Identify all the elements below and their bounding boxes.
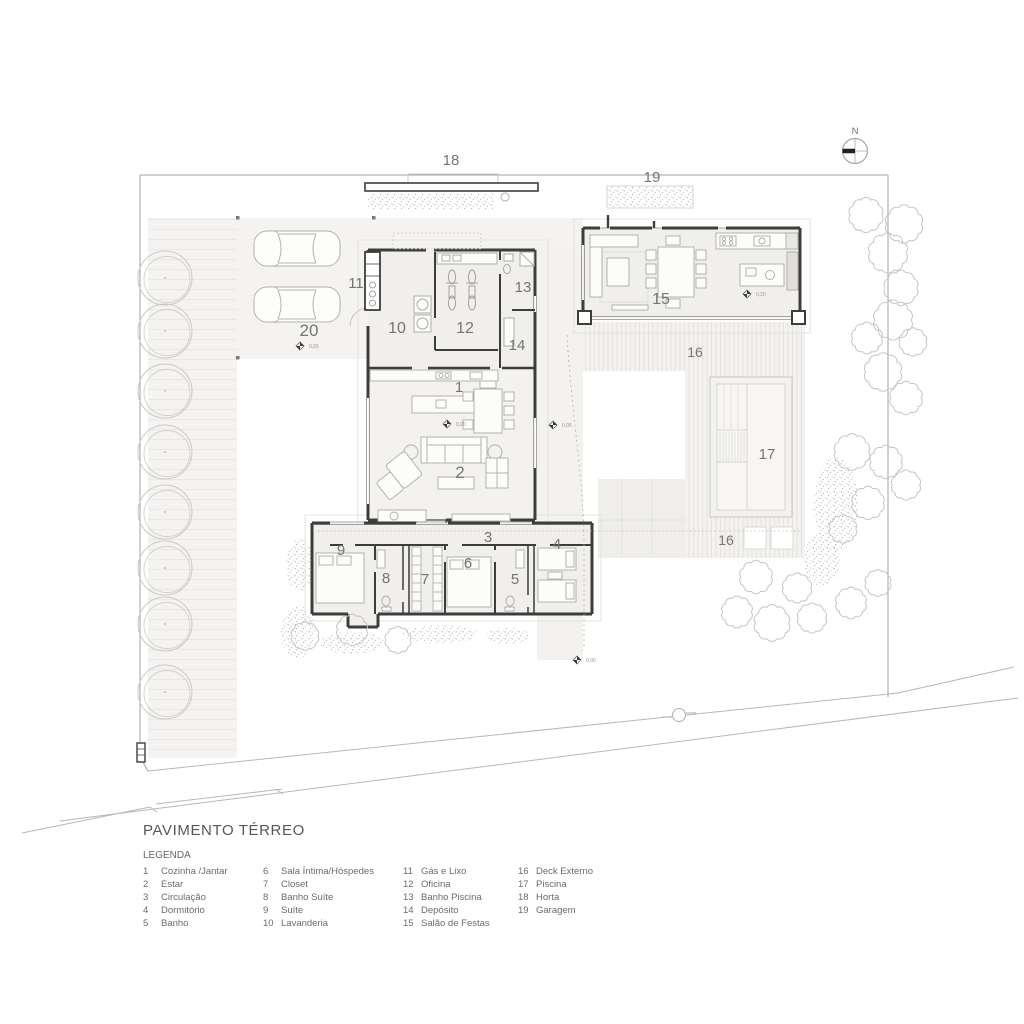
tree-scalloped [834, 434, 870, 471]
room-label-lavanderia: 10 [388, 320, 406, 337]
tree-scalloped [874, 300, 913, 340]
sofa [427, 437, 481, 445]
legend-item-number: 18 [518, 891, 536, 904]
legend-item-label: Suíte [281, 904, 403, 917]
room-label-gas-e-lixo: 11 [348, 275, 364, 292]
legend-item-label: Sala Íntima/Hóspedes [281, 865, 403, 878]
legend-column-4: 16Deck Externo17Piscina18Horta19Garagem [518, 865, 628, 930]
legend-item-11: 11Gás e Lixo [403, 865, 518, 878]
room-label-banho: 5 [511, 571, 519, 588]
tree-scalloped [852, 322, 883, 354]
legend-item-number: 15 [403, 917, 421, 930]
column [792, 311, 805, 324]
legend-item-number: 5 [143, 917, 161, 930]
room-label-banho-suite: 8 [382, 570, 390, 587]
backyard-pavers [598, 479, 685, 558]
legend-item-label: Deck Externo [536, 865, 628, 878]
room-label-estar: 2 [455, 463, 464, 482]
garagem-bed [607, 186, 693, 208]
tree-scalloped [722, 596, 753, 628]
legend-item-number: 17 [518, 878, 536, 891]
tree-scalloped [885, 205, 922, 243]
legend-item-number: 10 [263, 917, 281, 930]
legend-heading: LEGENDA [143, 850, 628, 861]
level-value: 0,05 [309, 344, 319, 350]
north-compass: N [843, 126, 868, 164]
street-access-marker [673, 709, 686, 722]
room-label-cozinha-jantar: 1 [455, 379, 463, 396]
legend-item-number: 11 [403, 865, 421, 878]
legend-item-number: 19 [518, 904, 536, 917]
legend-item-1: 1Cozinha /Jantar [143, 865, 263, 878]
room-label-deposito: 14 [509, 337, 526, 354]
legend-item-number: 9 [263, 904, 281, 917]
tree-scalloped [865, 570, 891, 597]
legend-column-3: 11Gás e Lixo12Oficina13Banho Piscina14De… [403, 865, 518, 930]
legend-item-2: 2Estar [143, 878, 263, 891]
legend-item-5: 5Banho [143, 917, 263, 930]
legend-item-label: Circulação [161, 891, 263, 904]
room-label-closet: 7 [421, 571, 429, 588]
legend-column-2: 6Sala Íntima/Hóspedes7Closet8Banho Suíte… [263, 865, 403, 930]
legend-item-12: 12Oficina [403, 878, 518, 891]
legend-item-label: Cozinha /Jantar [161, 865, 263, 878]
vanity [377, 550, 385, 568]
groundcover-patch [320, 632, 384, 654]
legend-item-10: 10Lavanderia [263, 917, 403, 930]
pedestrian-gate [137, 743, 145, 762]
lounger [744, 527, 766, 549]
horta-bed [365, 174, 538, 209]
dining-table [474, 389, 502, 433]
driveway [148, 218, 237, 758]
groundcover-patch [281, 606, 315, 658]
tree-scalloped [782, 573, 811, 603]
legend-item-18: 18Horta [518, 891, 628, 904]
room-label-sala-intima: 6 [464, 555, 472, 572]
car-1 [254, 230, 340, 267]
room-label-banho-piscina: 13 [515, 279, 532, 296]
legend-item-label: Lavanderia [281, 917, 403, 930]
legend-item-number: 6 [263, 865, 281, 878]
tree-scalloped [864, 353, 901, 391]
legend-item-number: 8 [263, 891, 281, 904]
room-label-piscina: 17 [759, 446, 776, 463]
tree-scalloped [891, 470, 920, 500]
room-label-patio-carros: 20 [300, 321, 319, 340]
tree-scalloped [754, 605, 790, 642]
tall-cabinet [787, 252, 798, 290]
legend-item-15: 15Salão de Festas [403, 917, 518, 930]
room-label-deck-externo-2: 16 [718, 532, 734, 548]
groundcover-patch [804, 534, 840, 586]
legend: 1Cozinha /Jantar2Estar3Circulação4Dormit… [143, 865, 628, 930]
legend-item-label: Banho Suíte [281, 891, 403, 904]
room-label-deck-externo-1: 16 [687, 344, 703, 360]
floor-plan-sheet: 181911131012201415161217169346875 0,050,… [0, 0, 1024, 1024]
room-label-horta: 18 [443, 152, 460, 169]
legend-item-label: Estar [161, 878, 263, 891]
tree-scalloped [890, 381, 922, 414]
party-hall [578, 215, 805, 324]
room-label-suite: 9 [337, 542, 345, 559]
legend-item-6: 6Sala Íntima/Hóspedes [263, 865, 403, 878]
tree-scalloped [740, 560, 772, 593]
legend-item-16: 16Deck Externo [518, 865, 628, 878]
legend-item-14: 14Depósito [403, 904, 518, 917]
tree-scalloped [870, 445, 902, 478]
street-line-upper [148, 667, 1014, 771]
tree-scalloped [797, 603, 826, 633]
gas-lixo-cabinet [365, 252, 380, 310]
legend-item-number: 13 [403, 891, 421, 904]
main-house [350, 250, 537, 524]
legend-item-3: 3Circulação [143, 891, 263, 904]
lounger [771, 527, 793, 549]
tree-scalloped [899, 328, 927, 356]
level-value: 0,00 [586, 658, 596, 664]
legend-item-label: Closet [281, 878, 403, 891]
vanity [516, 550, 524, 568]
level-value: 0,20 [456, 422, 466, 428]
groundcover-patch [402, 625, 478, 643]
room-label-circulacao: 3 [484, 529, 492, 546]
legend-item-number: 1 [143, 865, 161, 878]
sink [504, 254, 513, 261]
column [578, 311, 591, 324]
legend-item-19: 19Garagem [518, 904, 628, 917]
level-value: 0,20 [756, 292, 766, 298]
tree-scalloped [836, 587, 867, 619]
tree-scalloped [849, 197, 883, 232]
legend-item-label: Banho [161, 917, 263, 930]
legend-item-8: 8Banho Suíte [263, 891, 403, 904]
legend-item-number: 2 [143, 878, 161, 891]
groundcover-patch [486, 628, 530, 644]
legend-item-7: 7Closet [263, 878, 403, 891]
legend-item-13: 13Banho Piscina [403, 891, 518, 904]
page-title: PAVIMENTO TÉRREO [143, 822, 628, 839]
legend-item-label: Depósito [421, 904, 518, 917]
legend-item-label: Piscina [536, 878, 628, 891]
legend-item-4: 4Dormitório [143, 904, 263, 917]
legend-item-label: Horta [536, 891, 628, 904]
title-block: PAVIMENTO TÉRREO LEGENDA 1Cozinha /Janta… [143, 822, 628, 930]
legend-item-label: Dormitório [161, 904, 263, 917]
tree-scalloped [884, 270, 918, 305]
tv-bench [452, 514, 510, 521]
groundcover-patch [286, 539, 314, 591]
level-value: 0,05 [562, 423, 572, 429]
legend-item-label: Gás e Lixo [421, 865, 518, 878]
legend-column-1: 1Cozinha /Jantar2Estar3Circulação4Dormit… [143, 865, 263, 930]
north-label: N [852, 126, 859, 137]
legend-item-17: 17Piscina [518, 878, 628, 891]
entry-mat [378, 510, 426, 522]
legend-item-9: 9Suíte [263, 904, 403, 917]
tree-scalloped [385, 627, 411, 654]
room-label-dormitorio: 4 [553, 536, 561, 553]
legend-item-label: Banho Piscina [421, 891, 518, 904]
dining-table [658, 247, 694, 297]
room-label-salao-de-festas: 15 [652, 291, 670, 308]
legend-item-number: 12 [403, 878, 421, 891]
car-2 [254, 286, 340, 323]
legend-item-number: 3 [143, 891, 161, 904]
legend-item-number: 7 [263, 878, 281, 891]
room-label-garagem: 19 [644, 169, 661, 186]
legend-item-label: Garagem [536, 904, 628, 917]
legend-item-label: Oficina [421, 878, 518, 891]
legend-item-number: 16 [518, 865, 536, 878]
legend-item-number: 4 [143, 904, 161, 917]
bedroom-wing [312, 522, 592, 627]
room-label-oficina: 12 [456, 320, 474, 337]
legend-item-number: 14 [403, 904, 421, 917]
legend-item-label: Salão de Festas [421, 917, 518, 930]
